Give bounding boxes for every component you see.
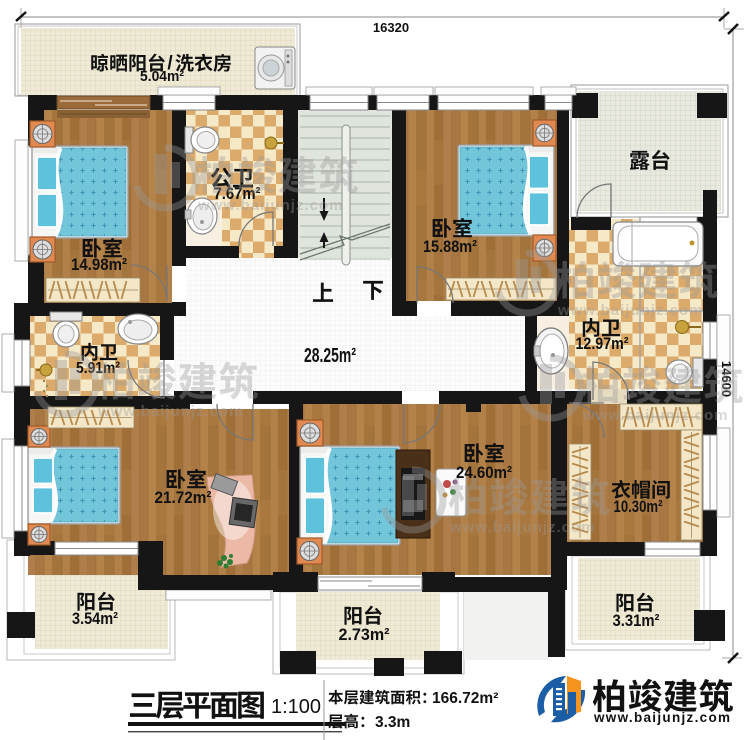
svg-text:www.baijunjz.com: www.baijunjz.com (593, 710, 731, 725)
svg-text:12.97m²: 12.97m² (576, 334, 629, 353)
svg-text:www.baijunjz.com: www.baijunjz.com (449, 519, 595, 536)
svg-text:5.04m²: 5.04m² (140, 68, 184, 85)
svg-text:21.72m²: 21.72m² (155, 488, 212, 507)
svg-text:3.54m²: 3.54m² (72, 609, 118, 628)
svg-text:10.30m²: 10.30m² (614, 497, 663, 516)
svg-text:3.31m²: 3.31m² (613, 611, 660, 630)
svg-text:www.baijunjz.com: www.baijunjz.com (582, 407, 728, 424)
svg-text:1:100: 1:100 (271, 696, 321, 718)
svg-text:2.73m²: 2.73m² (339, 625, 390, 644)
svg-text:15.88m²: 15.88m² (423, 237, 477, 256)
svg-text:28.25m²: 28.25m² (304, 345, 356, 367)
svg-text:www.baijunjz.com: www.baijunjz.com (197, 197, 343, 214)
svg-text:166.72m²: 166.72m² (432, 690, 498, 707)
svg-text:24.60m²: 24.60m² (456, 463, 512, 482)
svg-text:www.baijunjz.com: www.baijunjz.com (97, 403, 243, 420)
svg-text:16320: 16320 (373, 20, 409, 35)
svg-text:www.baijunjz.com: www.baijunjz.com (557, 302, 703, 319)
svg-text:3.3m: 3.3m (375, 714, 410, 731)
svg-text:14.98m²: 14.98m² (71, 255, 127, 274)
